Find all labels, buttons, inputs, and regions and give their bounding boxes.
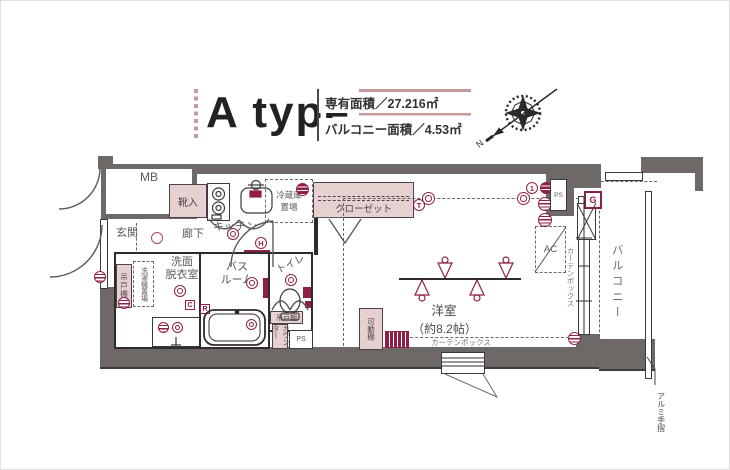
hall-door-arc bbox=[231, 221, 273, 267]
closet-bifold-mark bbox=[329, 219, 361, 243]
compass-north-label: N bbox=[474, 138, 485, 150]
toilet-icon bbox=[280, 289, 300, 320]
mb-door-arc bbox=[59, 168, 100, 209]
floorplan-page: A type 専有面積／27.216㎡ バルコニー面積／4.53㎡ MB 玄関 … bbox=[0, 0, 730, 470]
track-light-icon bbox=[399, 257, 521, 301]
bottom-window-details bbox=[442, 358, 497, 397]
handrail-leader bbox=[647, 357, 655, 385]
hatch-x-mark bbox=[577, 203, 596, 240]
shoe-door-arc-1 bbox=[209, 219, 239, 229]
bathtub-icon bbox=[204, 310, 265, 345]
faucet-icon bbox=[171, 337, 181, 345]
sink-icon bbox=[241, 181, 272, 214]
compass-icon bbox=[486, 89, 557, 141]
stove-icon bbox=[212, 188, 225, 219]
entrance-door-arc bbox=[50, 225, 102, 277]
ac-diagonal bbox=[535, 227, 566, 272]
fixture-overlay: N bbox=[1, 1, 730, 470]
